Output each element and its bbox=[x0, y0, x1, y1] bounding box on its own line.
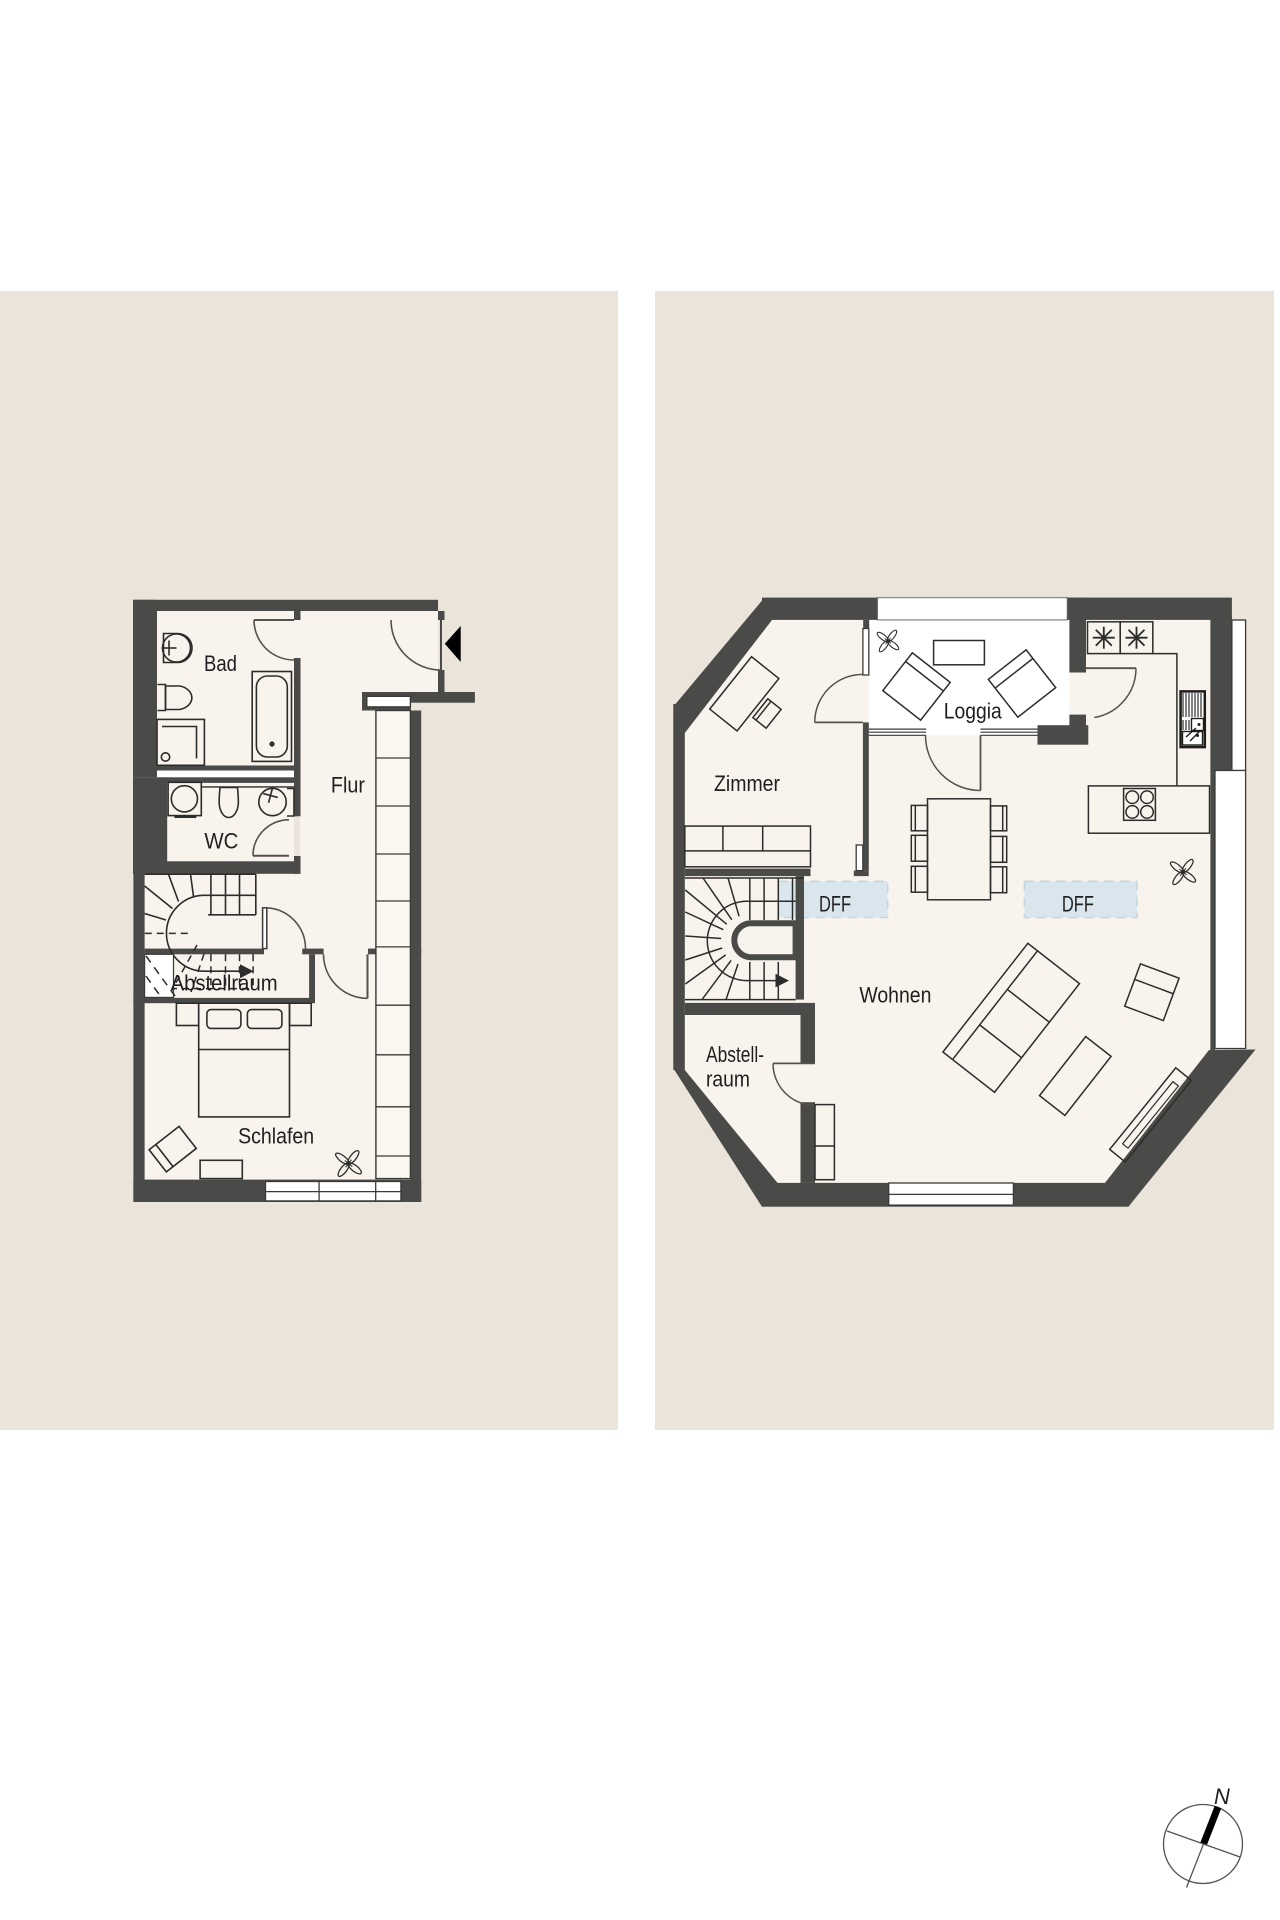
svg-text:Zimmer: Zimmer bbox=[714, 771, 780, 796]
svg-text:DFF: DFF bbox=[1062, 891, 1094, 916]
svg-text:Wohnen: Wohnen bbox=[859, 982, 931, 1007]
svg-text:Abstell-: Abstell- bbox=[706, 1042, 764, 1067]
svg-text:Flur: Flur bbox=[331, 773, 365, 798]
svg-text:WC: WC bbox=[204, 829, 238, 854]
svg-text:N: N bbox=[1214, 1784, 1230, 1809]
svg-text:Schlafen: Schlafen bbox=[238, 1124, 314, 1149]
svg-text:Abstellraum: Abstellraum bbox=[171, 971, 278, 996]
svg-text:raum: raum bbox=[706, 1066, 750, 1091]
svg-text:Loggia: Loggia bbox=[944, 699, 1003, 724]
svg-text:DFF: DFF bbox=[819, 891, 851, 916]
svg-text:Bad: Bad bbox=[204, 651, 237, 676]
